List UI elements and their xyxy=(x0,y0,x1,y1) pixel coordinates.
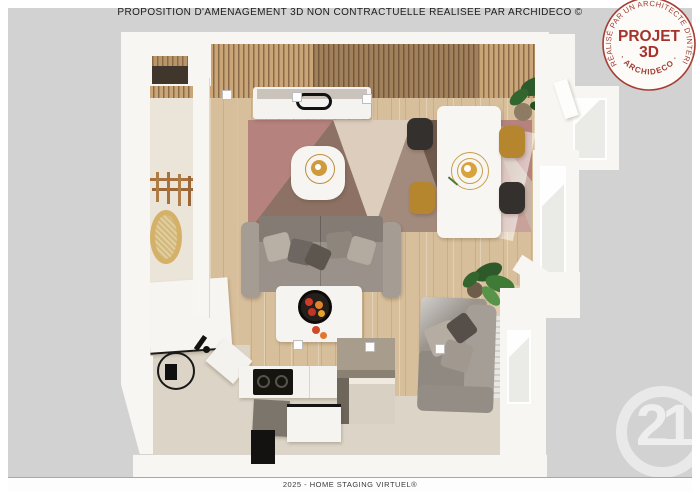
sofa-seam xyxy=(320,216,321,244)
wall-partition xyxy=(193,78,210,318)
spotlight-icon xyxy=(222,90,232,100)
cooktop xyxy=(253,369,293,395)
dining-chair-black xyxy=(407,118,433,150)
wall-clock xyxy=(157,352,195,390)
armchair-front xyxy=(417,385,494,414)
fruit xyxy=(318,310,325,317)
dining-chair-mustard xyxy=(409,182,435,214)
spotlight-icon xyxy=(362,94,372,104)
fruit-tray xyxy=(298,290,332,324)
counter-seam xyxy=(309,366,310,398)
architect-stamp: RÉALISÉ PAR UN ARCHITECTE D'INTÉRIEUR · … xyxy=(597,0,700,98)
footer-copyright: 2025 - HOME STAGING VIRTUEL® xyxy=(0,480,700,489)
kitchen-drawer-unit xyxy=(287,404,341,442)
sideboard xyxy=(253,87,371,119)
sofa-arm xyxy=(241,222,261,298)
coat-rack-peg xyxy=(188,176,191,206)
fruit xyxy=(320,332,327,339)
page-title: PROPOSITION D'AMÉNAGEMENT 3D NON CONTRAC… xyxy=(0,7,700,18)
entry-niche-slats xyxy=(152,56,188,66)
century21-number: 21 xyxy=(636,392,689,459)
sofa-arm xyxy=(381,222,401,298)
side-table xyxy=(291,146,345,200)
dining-chair-black xyxy=(499,182,525,214)
coat-rack xyxy=(150,172,194,206)
fruit xyxy=(312,326,320,334)
spotlight-icon xyxy=(292,92,302,102)
fruit xyxy=(315,301,323,309)
rattan-mirror xyxy=(150,210,182,264)
window xyxy=(540,166,566,284)
home-staging-presentation: { "header": { "title": "PROPOSITION D'AM… xyxy=(0,0,700,492)
stamp-title-line2: 3D xyxy=(639,44,659,61)
frame-border-top xyxy=(0,0,700,8)
coffee-table xyxy=(276,286,362,342)
armchair xyxy=(411,288,507,419)
coat-rack-peg xyxy=(167,172,170,204)
clock-hand xyxy=(165,364,177,380)
fruit xyxy=(308,308,316,316)
stamp-title-line1: PROJET xyxy=(618,28,681,45)
footer-separator xyxy=(0,477,700,478)
spotlight-icon xyxy=(293,340,303,350)
decor-dot xyxy=(315,164,321,170)
island-block xyxy=(349,378,395,424)
decor-dot xyxy=(464,165,471,172)
wall-left-angled xyxy=(121,356,153,458)
floorplan-render xyxy=(115,30,630,470)
coat-rack-peg xyxy=(156,172,159,202)
burner xyxy=(275,375,288,388)
fruit xyxy=(305,298,313,306)
spotlight-icon xyxy=(435,344,445,354)
coat-rack-peg xyxy=(178,174,181,206)
wall-top xyxy=(143,32,549,44)
window xyxy=(507,330,531,404)
wall-sconce-head xyxy=(203,346,210,353)
dining-table xyxy=(437,106,501,238)
floor-mat xyxy=(251,430,275,464)
spotlight-icon xyxy=(365,342,375,352)
frame-border-left xyxy=(0,0,8,492)
burner xyxy=(257,375,270,388)
